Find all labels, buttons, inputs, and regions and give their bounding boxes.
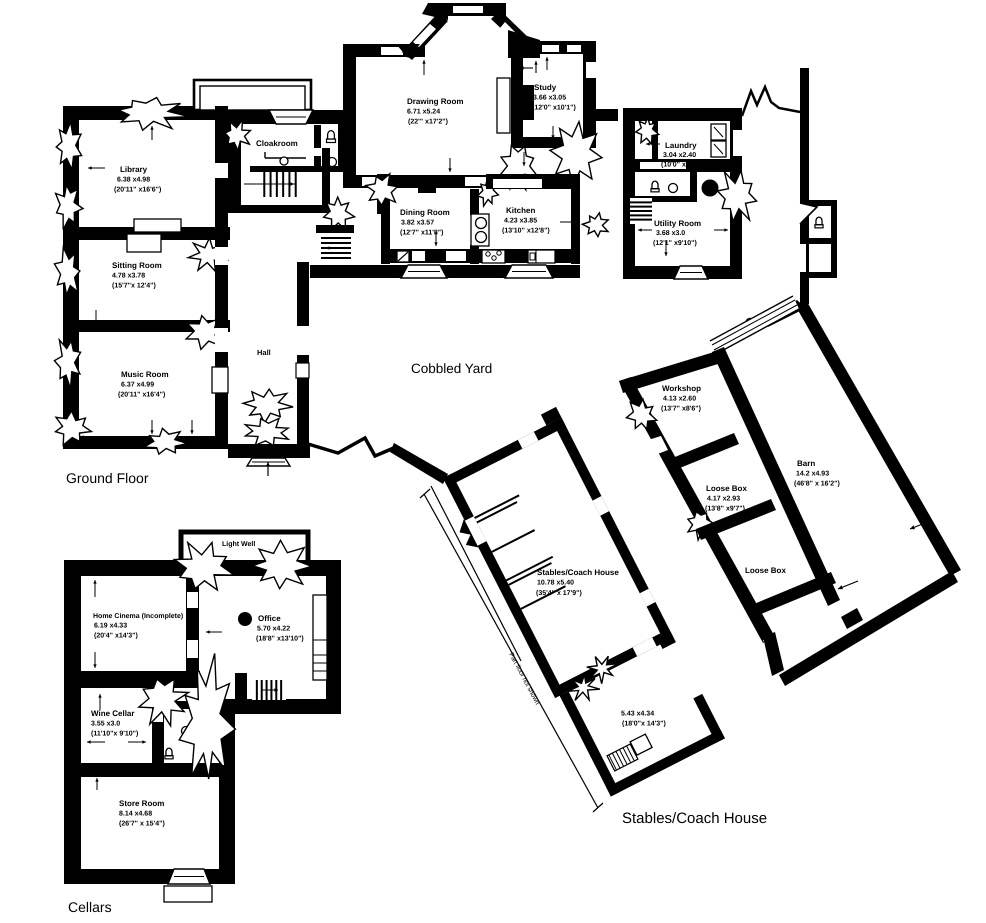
svg-text:3.55 x3.0: 3.55 x3.0: [91, 721, 120, 728]
svg-text:4.13 x2.60: 4.13 x2.60: [663, 396, 696, 403]
svg-text:14.2 x4.93: 14.2 x4.93: [796, 471, 829, 478]
svg-text:6.71 x5.24: 6.71 x5.24: [407, 109, 440, 116]
svg-text:4.78 x3.78: 4.78 x3.78: [112, 273, 145, 280]
svg-text:Cloakroom: Cloakroom: [256, 139, 298, 148]
svg-text:(22'" x17'2"): (22'" x17'2"): [408, 118, 448, 126]
svg-text:Music Room: Music Room: [121, 370, 169, 379]
svg-text:Workshop: Workshop: [662, 384, 701, 393]
svg-text:(10'0" x8'2"): (10'0" x8'2"): [661, 161, 701, 169]
svg-text:(13'10" x12'8"): (13'10" x12'8"): [502, 227, 550, 235]
svg-text:3.68 x3.0: 3.68 x3.0: [656, 230, 685, 237]
svg-text:Study: Study: [534, 83, 557, 92]
svg-text:(20'11" x16'4"): (20'11" x16'4"): [118, 391, 165, 399]
svg-text:Cobbled Yard: Cobbled Yard: [411, 361, 492, 376]
svg-text:(13'8" x9'7"): (13'8" x9'7"): [705, 505, 745, 513]
svg-text:(12'7" x11'8"): (12'7" x11'8"): [400, 229, 443, 237]
svg-text:Kitchen: Kitchen: [506, 206, 535, 215]
svg-text:Store Room: Store Room: [119, 799, 164, 808]
svg-text:Stables/Coach House: Stables/Coach House: [537, 568, 619, 577]
svg-text:(12'0" x10'1"): (12'0" x10'1"): [532, 104, 576, 112]
svg-text:Home Cinema (Incomplete): Home Cinema (Incomplete): [93, 612, 183, 620]
svg-text:4.23 x3.85: 4.23 x3.85: [504, 218, 537, 225]
svg-text:Utility Room: Utility Room: [654, 219, 701, 228]
svg-text:6.37 x4.99: 6.37 x4.99: [121, 382, 154, 389]
svg-text:3.66 x3.05: 3.66 x3.05: [533, 95, 566, 102]
svg-text:4.17 x2.93: 4.17 x2.93: [707, 496, 740, 503]
svg-text:(18'8" x13'10"): (18'8" x13'10"): [256, 635, 304, 643]
svg-text:5.70 x4.22: 5.70 x4.22: [257, 626, 290, 633]
svg-text:Cellars: Cellars: [68, 899, 112, 915]
svg-text:Sitting Room: Sitting Room: [112, 261, 162, 270]
svg-text:Laundry: Laundry: [665, 141, 697, 150]
svg-text:(26'7" x 15'4"): (26'7" x 15'4"): [119, 820, 165, 828]
svg-text:Loose Box: Loose Box: [706, 484, 747, 493]
svg-text:(15'7"x 12'4"): (15'7"x 12'4"): [112, 282, 156, 290]
svg-text:Loose Box: Loose Box: [745, 566, 786, 575]
svg-text:(20'11" x16'6"): (20'11" x16'6"): [114, 186, 161, 194]
svg-text:10.78 x5.40: 10.78 x5.40: [537, 580, 574, 587]
svg-text:Drawing Room: Drawing Room: [407, 97, 463, 106]
svg-text:Barn: Barn: [797, 459, 815, 468]
svg-text:Stables/Coach House: Stables/Coach House: [622, 810, 767, 827]
svg-text:(11'10"x 9'10"): (11'10"x 9'10"): [91, 730, 138, 738]
svg-text:Light Well: Light Well: [222, 540, 255, 548]
svg-text:(13'7" x8'6"): (13'7" x8'6"): [661, 405, 701, 413]
svg-text:Wine Cellar: Wine Cellar: [91, 709, 135, 718]
svg-text:5.43 x4.34: 5.43 x4.34: [621, 711, 654, 718]
svg-text:(46'8" x 16'2"): (46'8" x 16'2"): [794, 480, 840, 488]
svg-text:6.19 x4.33: 6.19 x4.33: [94, 623, 127, 630]
svg-text:Dining Room: Dining Room: [400, 208, 450, 217]
svg-text:8.14 x4.68: 8.14 x4.68: [119, 811, 152, 818]
svg-text:(20'4" x14'3"): (20'4" x14'3"): [94, 632, 138, 640]
svg-text:Office: Office: [258, 614, 281, 623]
svg-text:3.04 x2.40: 3.04 x2.40: [663, 152, 696, 159]
svg-text:(18'0"x 14'3"): (18'0"x 14'3"): [622, 720, 666, 728]
svg-text:(12'1" x9'10"): (12'1" x9'10"): [653, 239, 697, 247]
svg-text:6.38 x4.98: 6.38 x4.98: [117, 177, 150, 184]
svg-text:(35'4" x 17'9"): (35'4" x 17'9"): [536, 589, 582, 597]
svg-text:Hall: Hall: [257, 348, 271, 357]
svg-text:Library: Library: [120, 165, 148, 174]
svg-text:3.82 x3.57: 3.82 x3.57: [401, 220, 434, 227]
svg-text:Ground Floor: Ground Floor: [66, 470, 149, 486]
